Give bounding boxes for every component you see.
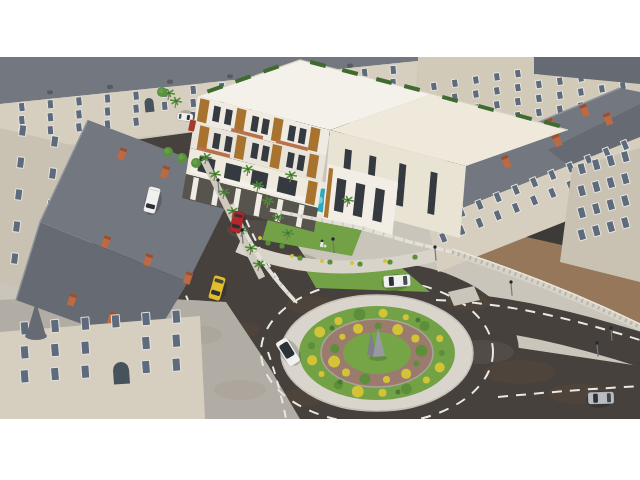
- island-tree: [330, 326, 335, 331]
- window: [493, 72, 500, 81]
- window: [20, 346, 29, 360]
- window: [472, 90, 479, 99]
- window: [76, 97, 83, 107]
- window: [76, 110, 83, 120]
- window: [535, 80, 542, 89]
- window: [142, 360, 151, 374]
- window: [104, 94, 111, 104]
- window: [133, 117, 140, 127]
- window: [493, 100, 500, 109]
- window: [514, 69, 521, 78]
- island-tree: [396, 390, 401, 395]
- window: [18, 102, 25, 112]
- window: [104, 107, 111, 117]
- window: [430, 82, 437, 91]
- island-tree: [338, 380, 343, 385]
- island-tree: [416, 318, 421, 323]
- window: [190, 98, 197, 108]
- window: [111, 315, 120, 329]
- window: [514, 97, 521, 106]
- window: [133, 91, 140, 101]
- window: [133, 104, 140, 114]
- window: [81, 341, 90, 355]
- window: [535, 94, 542, 103]
- window: [81, 365, 90, 379]
- window: [51, 319, 60, 333]
- window: [556, 91, 563, 100]
- window: [472, 76, 479, 85]
- window: [20, 370, 29, 384]
- window: [76, 123, 83, 133]
- window: [142, 312, 151, 326]
- window: [493, 86, 500, 95]
- window: [535, 108, 542, 117]
- window: [598, 84, 605, 93]
- window: [390, 65, 397, 75]
- window: [161, 101, 168, 111]
- window: [142, 336, 151, 350]
- scene-content: [0, 53, 640, 442]
- roundabout-island: [281, 295, 473, 411]
- window: [47, 125, 54, 135]
- window: [81, 317, 90, 331]
- window: [18, 115, 25, 125]
- window: [172, 334, 181, 348]
- aerial-city-render: [0, 0, 640, 480]
- window: [514, 83, 521, 92]
- window: [577, 88, 584, 97]
- tree: [191, 158, 201, 168]
- tree: [163, 147, 173, 157]
- window: [190, 85, 197, 95]
- window: [51, 343, 60, 357]
- window: [51, 367, 60, 381]
- tree: [177, 153, 187, 163]
- window: [556, 77, 563, 86]
- stroller: [323, 244, 326, 247]
- window: [47, 112, 54, 122]
- window: [172, 358, 181, 372]
- tree: [157, 87, 167, 97]
- window: [47, 99, 54, 109]
- window: [451, 79, 458, 88]
- render-canvas: [0, 0, 640, 480]
- window: [172, 310, 181, 324]
